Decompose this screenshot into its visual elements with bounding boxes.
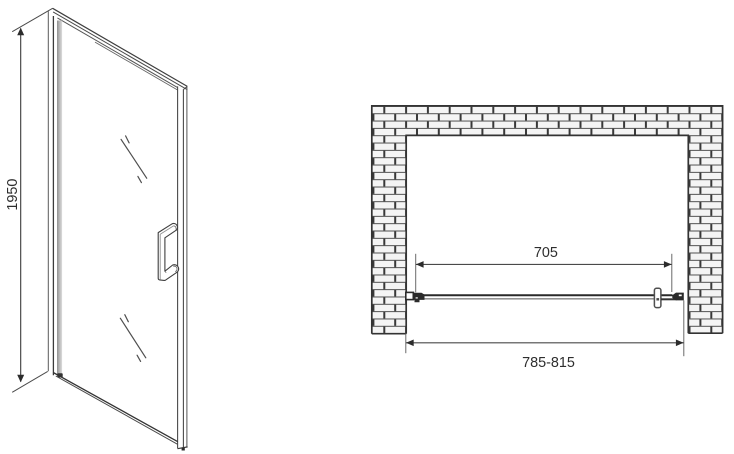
- svg-text:705: 705: [534, 245, 558, 261]
- svg-text:1950: 1950: [5, 179, 21, 211]
- svg-text:785-815: 785-815: [522, 355, 575, 371]
